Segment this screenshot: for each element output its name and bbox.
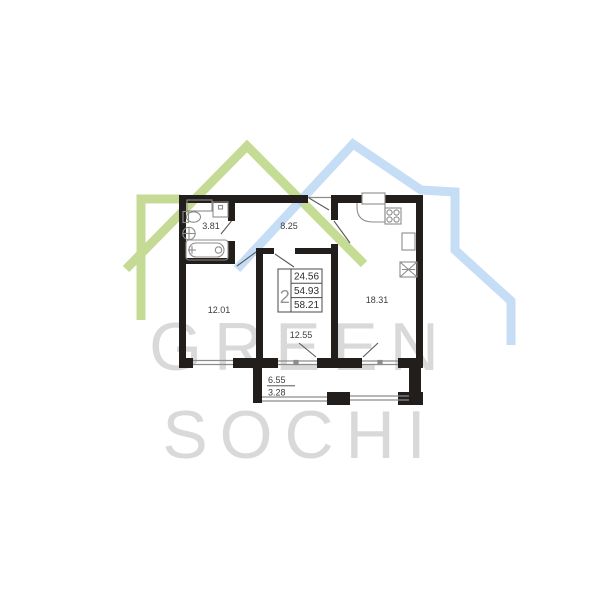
wall [256,248,274,254]
kitchen-cabinet-icon [402,233,415,250]
watermark-text-line1: GREEN [149,309,451,385]
wall [179,358,193,368]
bathroom-area-label: 3.81 [202,221,220,231]
stove-burner-icon [387,217,392,222]
wall [398,358,423,368]
bedroom-area-label: 12.01 [208,305,231,315]
balcony-wall [327,392,350,405]
floor-plan-page: GREEN SOCHI [0,0,600,600]
stove-burner-icon [387,210,392,215]
balcony-wall [253,368,262,403]
kitchen-niche [362,193,385,204]
balcony-wall [409,368,421,392]
wall [179,195,308,203]
stove-burner-icon [394,217,399,222]
balcony-wall [398,392,423,405]
apartment-area-value: 54.93 [294,286,319,297]
total-area-value: 58.21 [294,300,319,311]
wall [331,244,338,358]
sill-marker [378,361,382,365]
sill-marker [294,361,298,365]
living-area-value: 24.56 [294,272,319,283]
wall [416,195,423,368]
wall [179,258,235,264]
bathtub-drain-icon [215,247,221,253]
kitchen-counter-icon [357,203,385,222]
kitchen-living-area-label: 18.31 [366,295,389,305]
living-door-swing [275,254,294,267]
floor-plan-canvas: GREEN SOCHI [0,0,600,600]
wall [256,250,263,358]
wall [331,195,338,220]
balcony-area-full-label: 6.55 [268,375,286,385]
washing-machine-door-icon [219,206,223,210]
watermark-text-line2: SOCHI [162,397,437,473]
stove-burner-icon [394,210,399,215]
hallway-area-label: 8.25 [280,221,298,231]
balcony-area-reduced-label: 3.28 [268,388,286,398]
info-table: 2 24.56 54.93 58.21 [278,269,322,312]
wall [228,195,235,221]
bathroom-door-swing [221,221,232,234]
wall [317,358,362,368]
living-room-area-label: 12.55 [290,330,313,340]
wall [233,358,278,368]
rooms-count-label: 2 [280,287,290,307]
